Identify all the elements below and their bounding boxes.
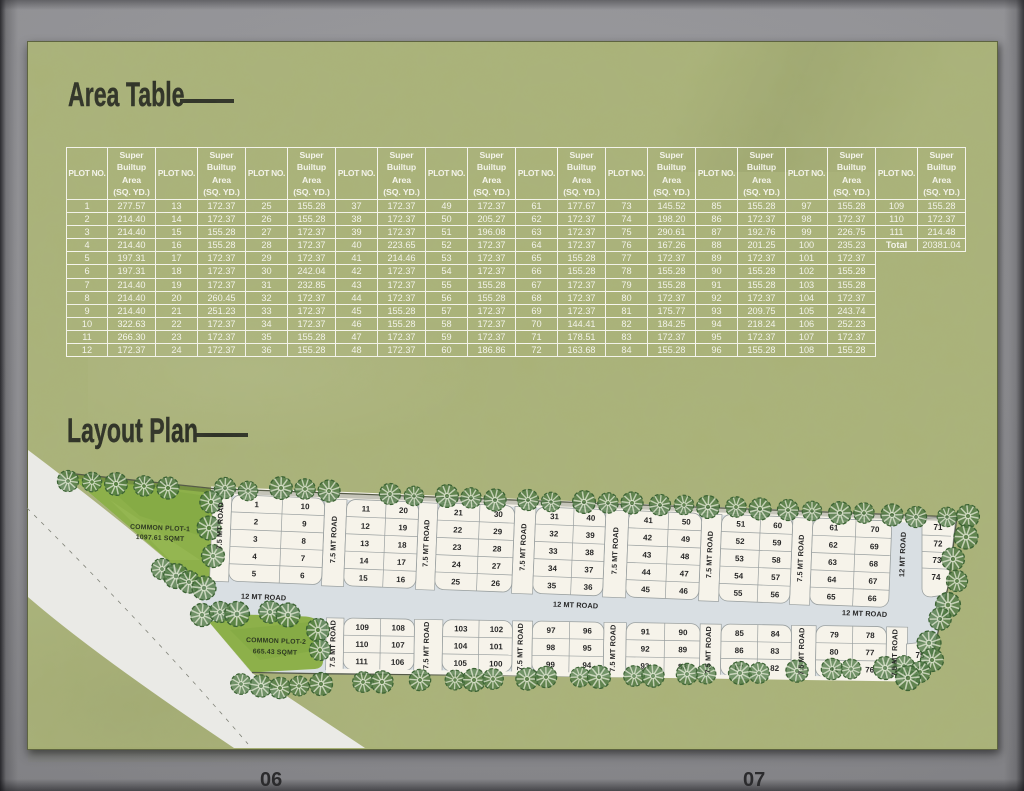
svg-text:107: 107: [391, 641, 405, 650]
svg-text:45: 45: [641, 585, 651, 594]
svg-text:34: 34: [548, 564, 558, 573]
svg-text:35: 35: [547, 581, 557, 590]
svg-text:7.5 MT ROAD: 7.5 MT ROAD: [796, 628, 806, 675]
svg-text:7.5 MT ROAD: 7.5 MT ROAD: [890, 629, 900, 676]
svg-text:16: 16: [396, 575, 406, 584]
svg-text:66: 66: [868, 594, 878, 603]
svg-text:67: 67: [868, 577, 878, 586]
svg-text:27: 27: [492, 562, 502, 571]
svg-text:41: 41: [644, 516, 654, 525]
svg-text:31: 31: [550, 512, 560, 521]
svg-text:28: 28: [492, 544, 502, 553]
svg-text:39: 39: [586, 531, 596, 540]
svg-text:104: 104: [454, 641, 468, 650]
svg-text:26: 26: [491, 579, 501, 588]
svg-text:7.5 MT ROAD: 7.5 MT ROAD: [610, 527, 621, 575]
svg-text:50: 50: [682, 517, 692, 526]
svg-text:96: 96: [583, 626, 593, 635]
svg-text:105: 105: [453, 659, 467, 668]
svg-text:20: 20: [399, 506, 409, 515]
svg-text:70: 70: [870, 525, 880, 534]
svg-text:58: 58: [772, 556, 782, 565]
svg-text:102: 102: [490, 625, 504, 634]
svg-text:42: 42: [643, 533, 653, 542]
svg-text:12 MT ROAD: 12 MT ROAD: [897, 532, 908, 578]
svg-text:36: 36: [583, 583, 593, 592]
svg-text:11: 11: [362, 504, 371, 513]
svg-text:15: 15: [359, 574, 369, 583]
svg-text:7.5 MT ROAD: 7.5 MT ROAD: [703, 626, 713, 673]
svg-text:33: 33: [549, 547, 559, 556]
svg-text:7.5 MT ROAD: 7.5 MT ROAD: [608, 625, 618, 672]
svg-text:97: 97: [547, 626, 557, 635]
svg-text:23: 23: [452, 543, 462, 552]
svg-text:48: 48: [680, 552, 690, 561]
svg-text:72: 72: [934, 540, 943, 549]
svg-text:38: 38: [585, 548, 595, 557]
svg-text:85: 85: [735, 629, 745, 638]
svg-text:103: 103: [454, 624, 468, 633]
svg-text:62: 62: [829, 540, 839, 549]
svg-text:43: 43: [642, 550, 652, 559]
svg-text:52: 52: [735, 537, 745, 546]
svg-text:90: 90: [679, 628, 689, 637]
svg-text:82: 82: [770, 664, 780, 673]
svg-text:74: 74: [932, 573, 941, 582]
svg-text:110: 110: [355, 640, 369, 649]
svg-text:98: 98: [546, 643, 556, 652]
svg-text:86: 86: [735, 646, 745, 655]
svg-text:18: 18: [397, 540, 407, 549]
svg-text:25: 25: [451, 577, 461, 586]
svg-text:12: 12: [361, 522, 371, 531]
svg-text:56: 56: [770, 590, 780, 599]
svg-text:19: 19: [398, 523, 408, 532]
svg-text:91: 91: [641, 627, 651, 636]
svg-text:83: 83: [770, 647, 780, 656]
svg-text:80: 80: [830, 648, 840, 657]
svg-text:51: 51: [736, 519, 746, 528]
svg-text:7.5 MT ROAD: 7.5 MT ROAD: [795, 534, 806, 582]
svg-text:49: 49: [681, 535, 691, 544]
svg-text:57: 57: [771, 573, 781, 582]
svg-text:14: 14: [359, 556, 369, 565]
svg-text:65: 65: [827, 592, 837, 601]
svg-text:10: 10: [300, 502, 310, 511]
svg-text:54: 54: [734, 571, 744, 580]
svg-text:24: 24: [452, 560, 462, 569]
svg-text:12 MT ROAD: 12 MT ROAD: [241, 592, 287, 603]
svg-text:29: 29: [493, 527, 503, 536]
svg-text:109: 109: [355, 623, 369, 632]
svg-text:7.5 MT ROAD: 7.5 MT ROAD: [515, 623, 525, 670]
svg-text:21: 21: [454, 508, 464, 517]
svg-text:78: 78: [866, 631, 876, 640]
svg-text:7.5 MT ROAD: 7.5 MT ROAD: [704, 531, 715, 579]
svg-text:84: 84: [771, 629, 781, 638]
svg-text:89: 89: [678, 645, 688, 654]
svg-text:111: 111: [355, 657, 368, 666]
svg-text:92: 92: [641, 645, 651, 654]
svg-text:46: 46: [679, 586, 689, 595]
svg-text:22: 22: [453, 525, 463, 534]
svg-text:64: 64: [827, 575, 837, 584]
svg-text:73: 73: [933, 556, 942, 565]
svg-text:101: 101: [489, 642, 503, 651]
svg-text:95: 95: [583, 644, 593, 653]
svg-text:7.5 MT ROAD: 7.5 MT ROAD: [518, 523, 529, 571]
svg-text:100: 100: [489, 659, 503, 668]
svg-text:79: 79: [830, 630, 840, 639]
svg-text:59: 59: [772, 538, 782, 547]
svg-text:63: 63: [828, 558, 838, 567]
svg-text:60: 60: [773, 521, 783, 530]
svg-text:12 MT ROAD: 12 MT ROAD: [553, 600, 599, 611]
svg-text:77: 77: [865, 648, 875, 657]
svg-text:7.5 MT ROAD: 7.5 MT ROAD: [421, 622, 431, 669]
svg-text:37: 37: [584, 565, 594, 574]
svg-text:44: 44: [642, 568, 652, 577]
svg-text:12 MT ROAD: 12 MT ROAD: [842, 608, 888, 619]
svg-text:53: 53: [735, 554, 745, 563]
svg-text:17: 17: [397, 558, 407, 567]
svg-text:7.5 MT ROAD: 7.5 MT ROAD: [328, 516, 339, 564]
svg-text:47: 47: [680, 569, 690, 578]
svg-text:55: 55: [733, 589, 743, 598]
svg-text:7.5 MT ROAD: 7.5 MT ROAD: [328, 620, 338, 667]
svg-text:68: 68: [869, 559, 879, 568]
svg-text:108: 108: [391, 623, 405, 632]
svg-text:40: 40: [586, 513, 596, 522]
svg-text:32: 32: [549, 529, 559, 538]
svg-text:7.5 MT ROAD: 7.5 MT ROAD: [421, 519, 432, 567]
svg-text:106: 106: [391, 658, 405, 667]
svg-text:7.5 MT ROAD: 7.5 MT ROAD: [215, 502, 226, 550]
svg-text:13: 13: [360, 539, 370, 548]
svg-text:69: 69: [870, 542, 880, 551]
